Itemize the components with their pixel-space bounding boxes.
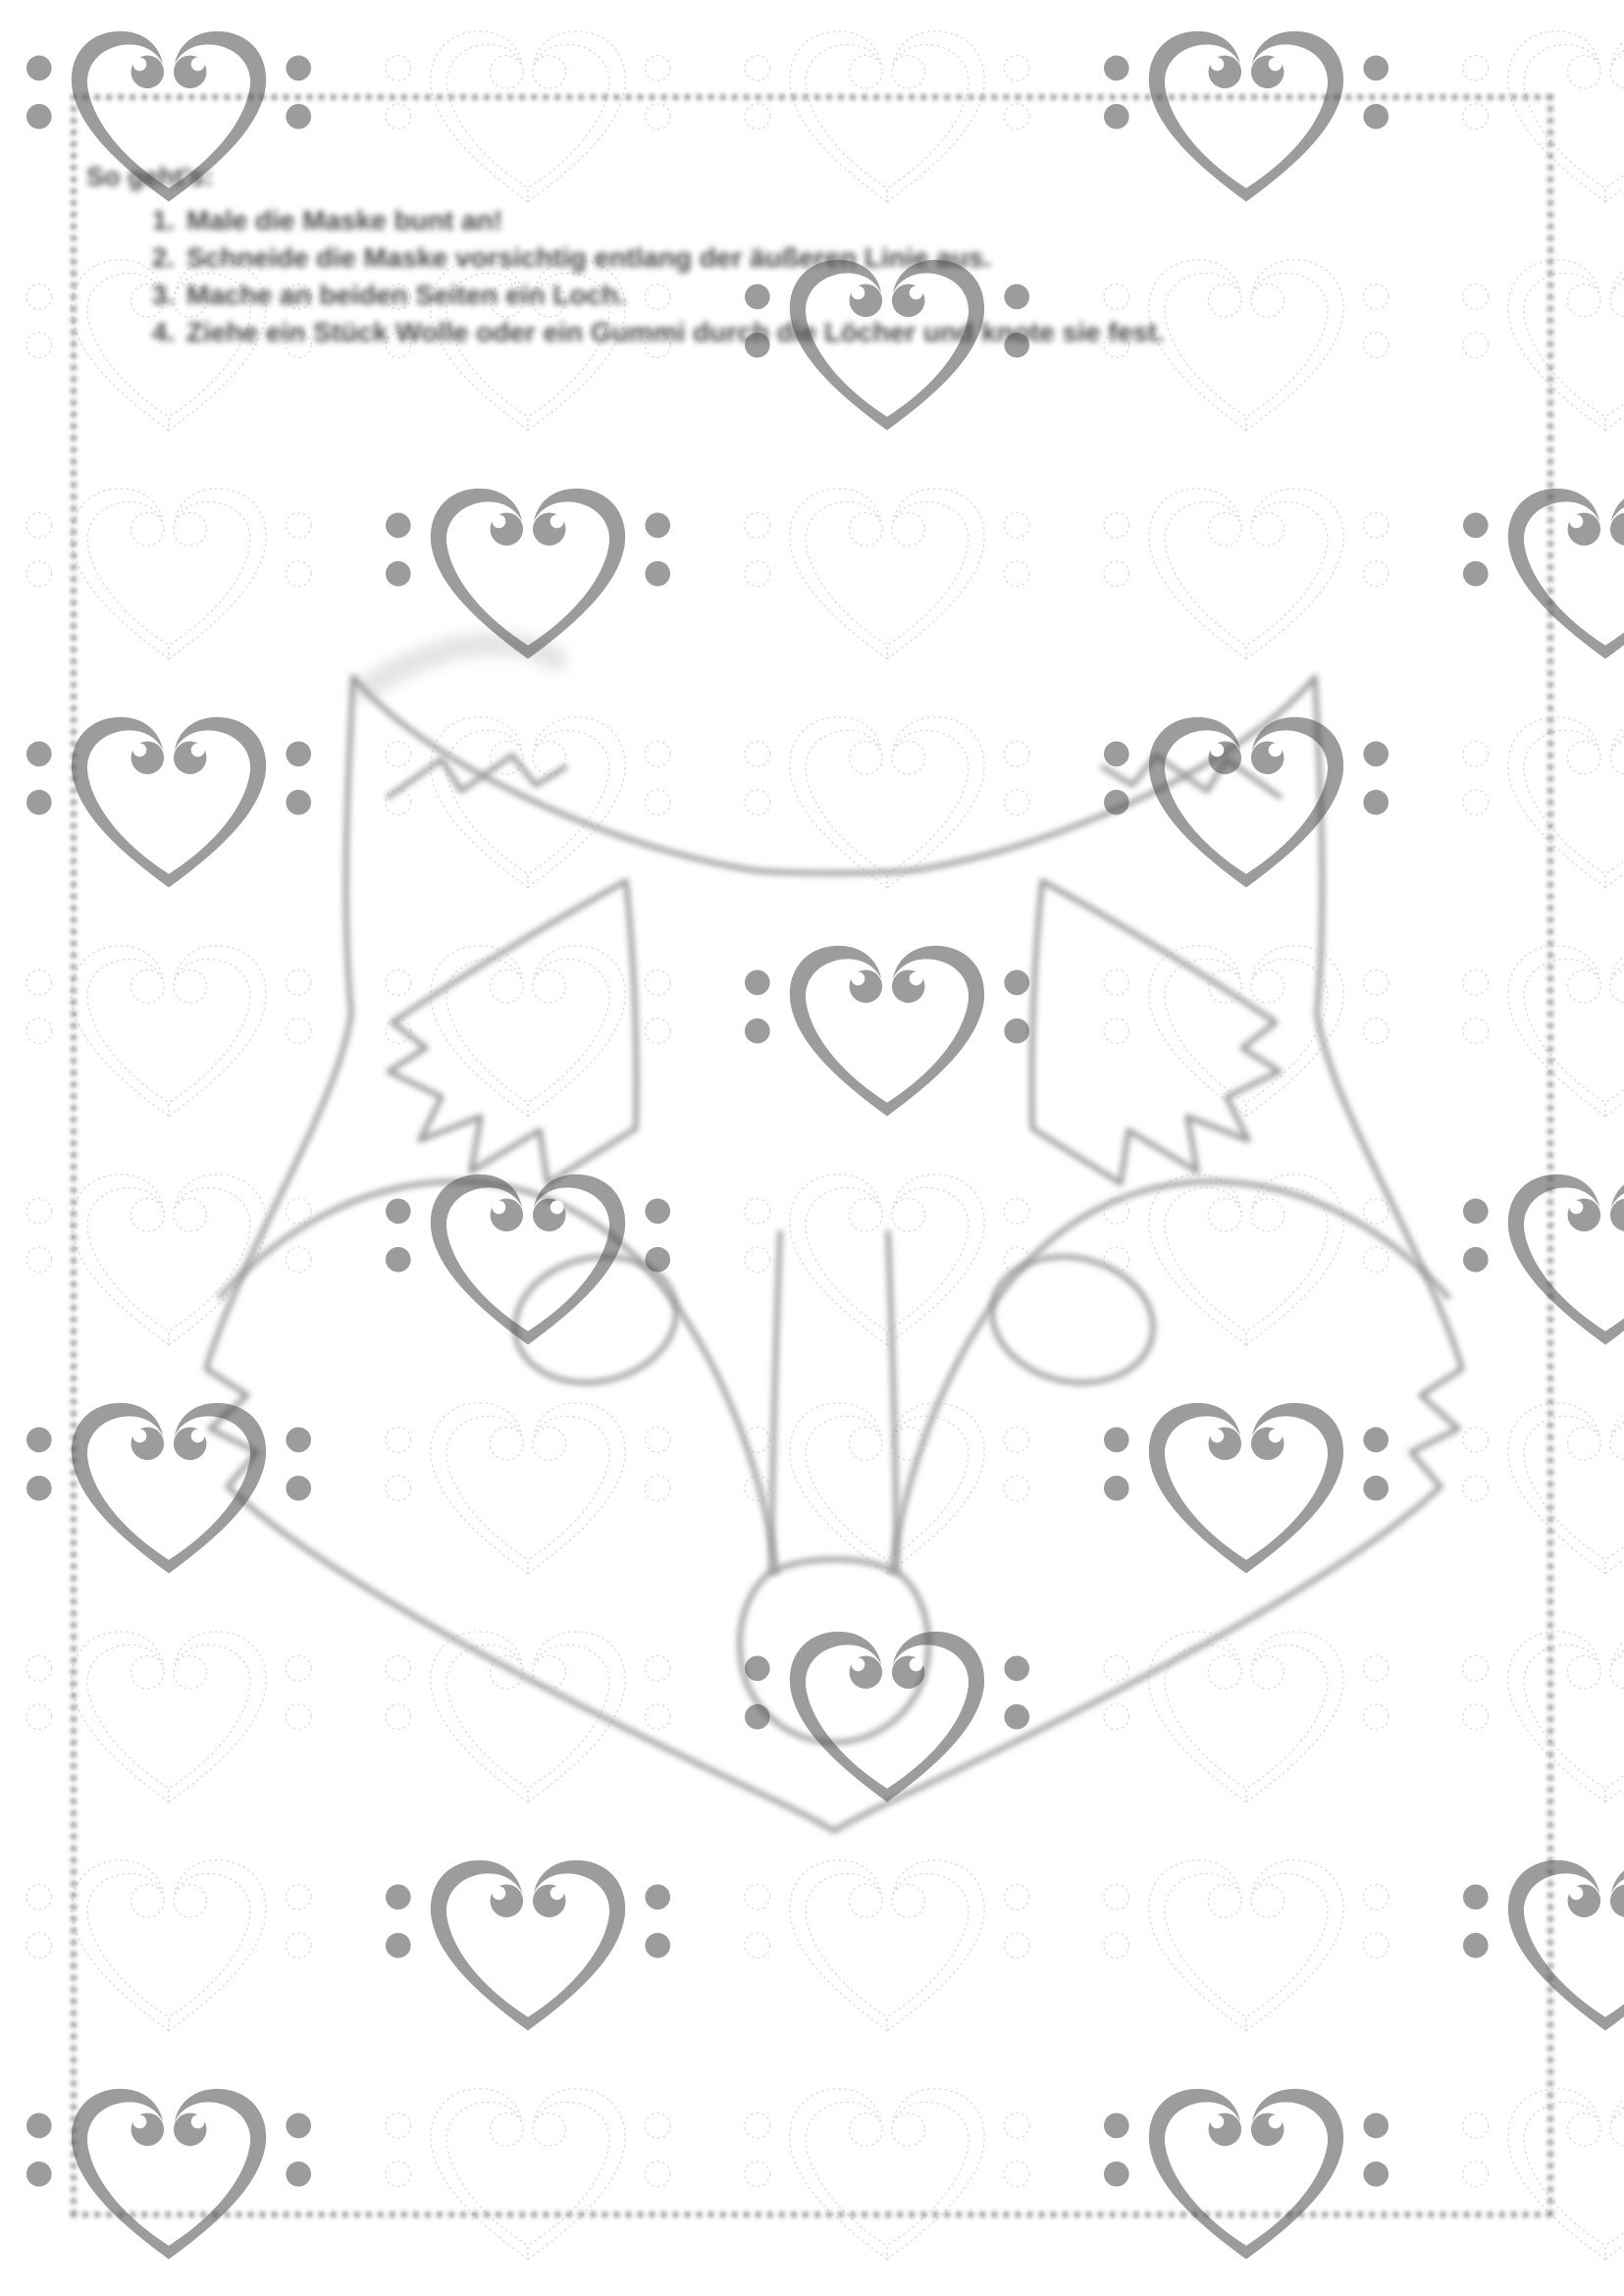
fox-left-ear-inner bbox=[389, 881, 637, 1183]
fox-right-ear-inner bbox=[1031, 881, 1280, 1183]
fox-left-eye-hole bbox=[502, 1241, 689, 1398]
fox-face-outline bbox=[206, 677, 1462, 1831]
fox-left-ear-fur-strip bbox=[389, 756, 565, 797]
fox-right-blaze-line bbox=[888, 1232, 897, 1572]
fox-right-muzzle-arc bbox=[892, 1181, 1448, 1572]
fox-right-ear-fur-strip bbox=[1103, 756, 1280, 797]
worksheet-page: So geht's: Male die Maske bunt an!Schnei… bbox=[0, 0, 1624, 2296]
fox-left-blaze-line bbox=[771, 1232, 780, 1572]
fox-right-eye-hole bbox=[979, 1241, 1166, 1398]
fox-mask-illustration bbox=[0, 0, 1624, 2296]
fox-nose bbox=[740, 1559, 928, 1743]
fox-left-muzzle-arc bbox=[220, 1181, 776, 1572]
